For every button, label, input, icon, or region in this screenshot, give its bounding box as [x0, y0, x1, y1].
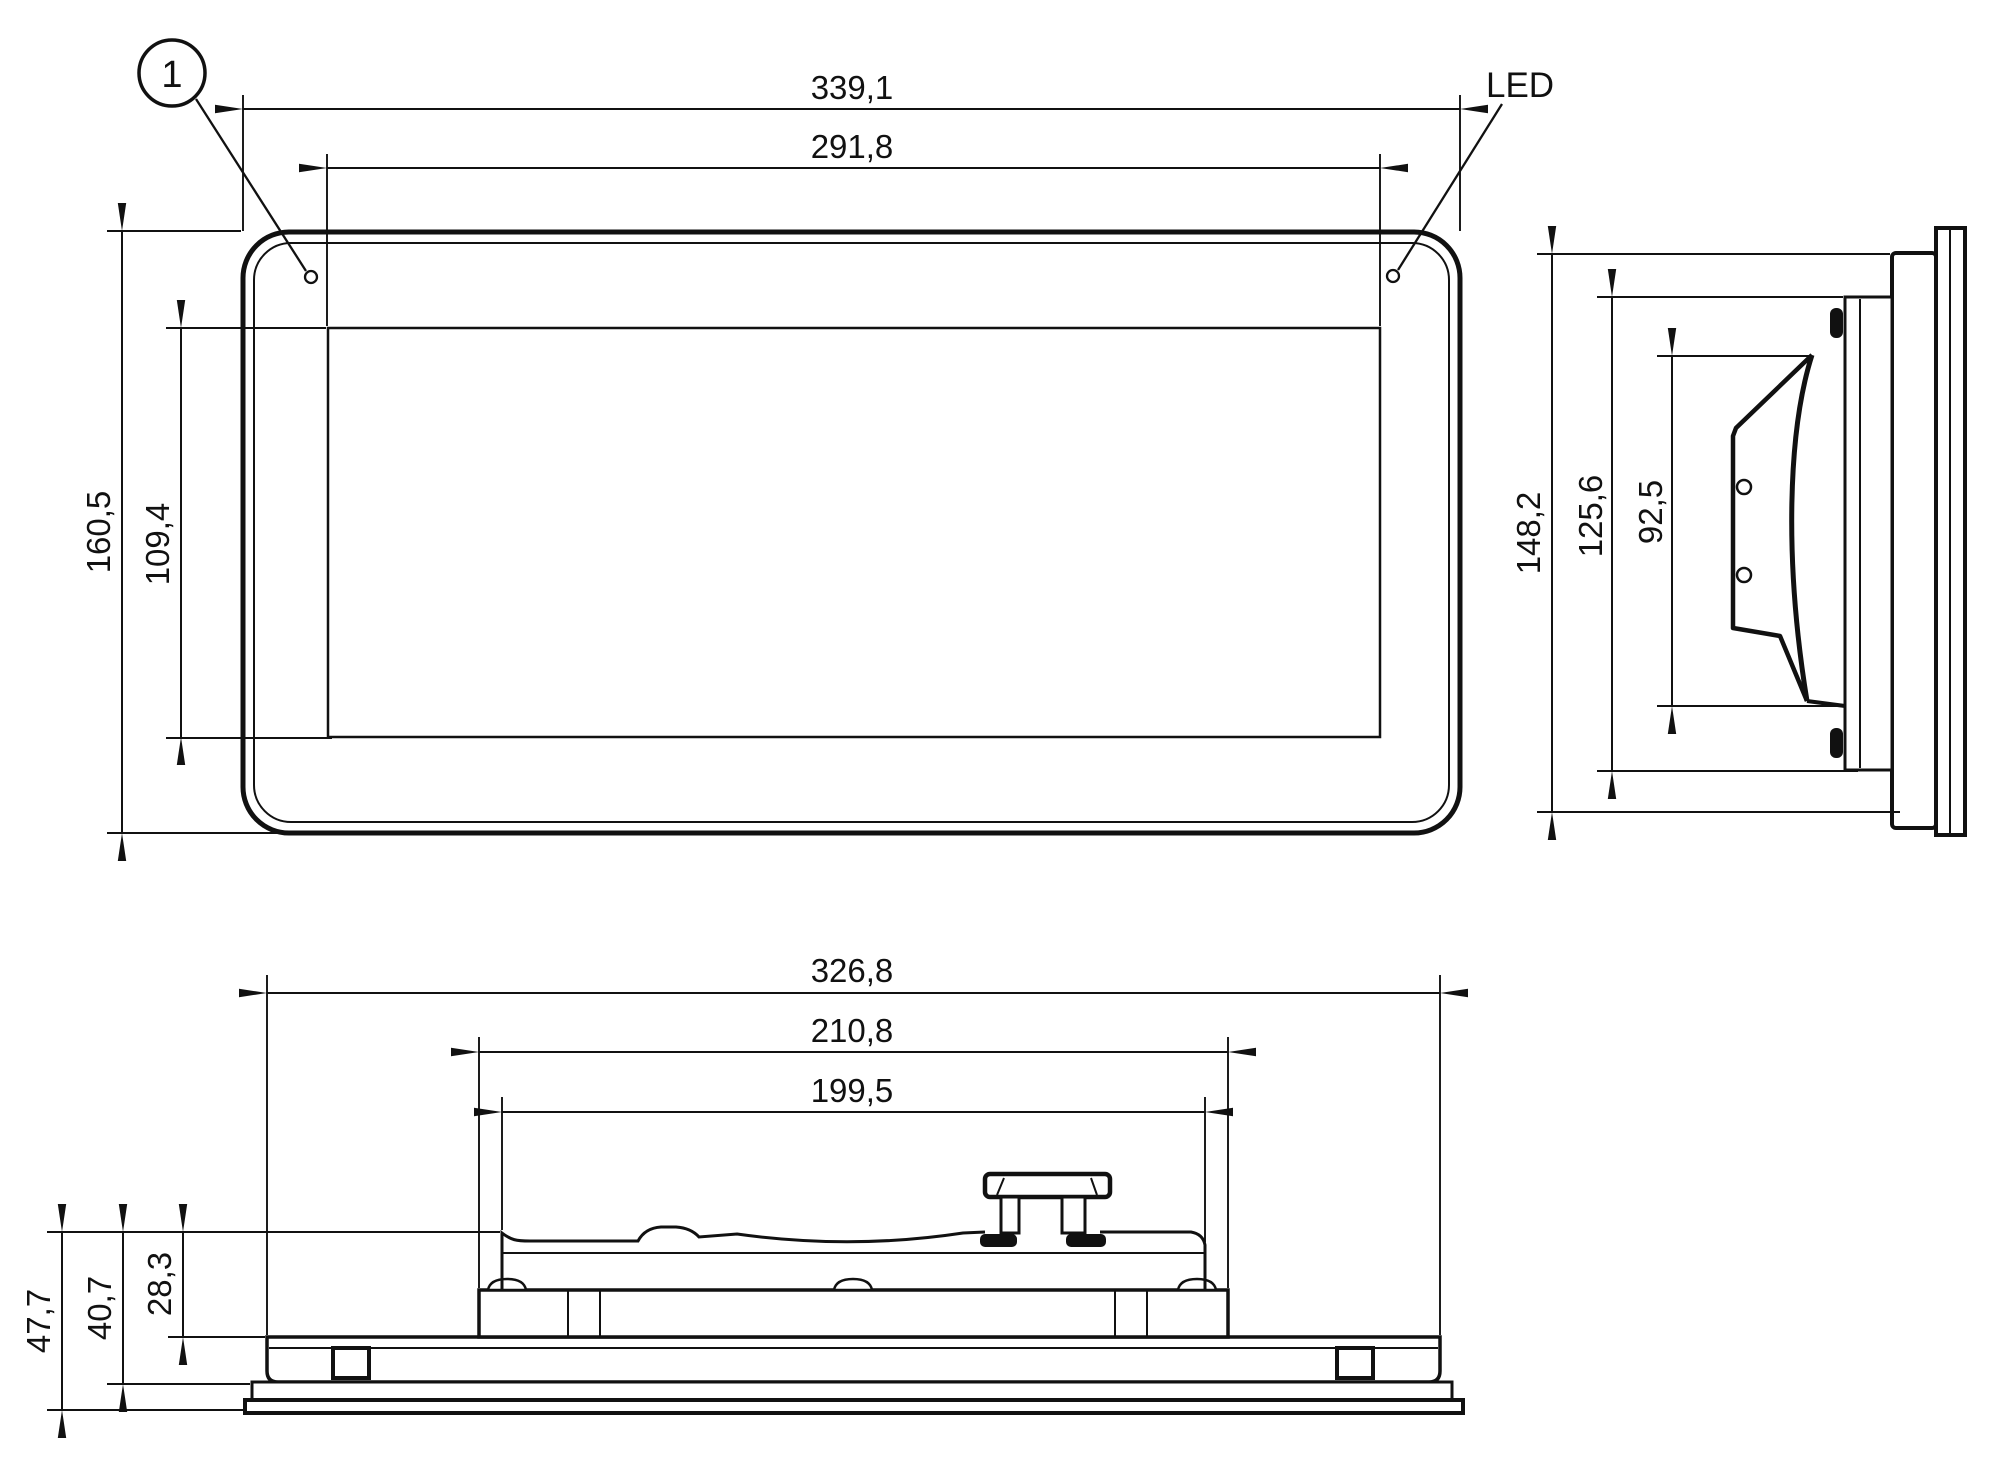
side-clip-tab-bottom [1830, 728, 1843, 758]
dim-side-height-bracket: 92,5 [1632, 356, 1843, 706]
dimension-value: 148,2 [1510, 492, 1547, 575]
dim-bottom-width-flange: 210,8 [479, 1012, 1228, 1288]
led-leader-line [1398, 104, 1502, 270]
connector-foot-left [980, 1234, 1017, 1247]
dimension-value: 109,4 [139, 503, 176, 586]
dimension-value: 199,5 [811, 1072, 894, 1109]
bottom-mount-body-outline [502, 1227, 985, 1290]
connector-post-left [1001, 1197, 1019, 1233]
connector-foot-right [1066, 1234, 1106, 1247]
dim-side-height-housing: 125,6 [1572, 297, 1858, 771]
dimension-value: 40,7 [81, 1276, 118, 1340]
side-chassis [1845, 297, 1892, 770]
side-view [1733, 228, 1965, 835]
bottom-bezel-back [267, 1337, 1440, 1382]
bottom-glass-upper [252, 1382, 1452, 1400]
callout-led: LED [1387, 66, 1554, 282]
dimension-value: 125,6 [1572, 475, 1609, 558]
front-view [243, 232, 1460, 833]
dim-side-height-overall: 148,2 [1510, 254, 1900, 812]
led-target-dot [1387, 270, 1399, 282]
dimension-value: 210,8 [811, 1012, 894, 1049]
connector-cap [985, 1174, 1110, 1197]
led-label: LED [1486, 66, 1554, 105]
dimension-value: 28,3 [141, 1252, 178, 1316]
drawing-canvas: 1 LED 339,1 291,8 160,5 109,4 [0, 0, 2000, 1462]
technical-drawing-svg: 1 LED 339,1 291,8 160,5 109,4 [0, 0, 2000, 1462]
bottom-clip-slot-right [1337, 1348, 1373, 1378]
flange-dome-center [834, 1279, 872, 1290]
side-bracket-hole-bottom [1737, 568, 1751, 582]
dim-bottom-depth-body: 28,3 [141, 1232, 265, 1337]
dimension-value: 339,1 [811, 69, 894, 106]
dim-bottom-width-rear: 326,8 [267, 952, 1440, 1335]
callout-1-number: 1 [161, 54, 182, 96]
dim-bottom-width-body: 199,5 [502, 1072, 1205, 1242]
callout-1-target-dot [305, 271, 317, 283]
side-front-bezel [1892, 253, 1936, 828]
dimension-value: 291,8 [811, 128, 894, 165]
connector-post-right [1062, 1197, 1085, 1233]
dimension-value: 160,5 [80, 491, 117, 574]
display-area [328, 328, 1380, 737]
bottom-clip-slot-left [333, 1348, 369, 1378]
dimension-value: 47,7 [20, 1289, 57, 1353]
side-clip-tab-top [1830, 308, 1843, 338]
dimension-value: 92,5 [1632, 480, 1669, 544]
bottom-view [245, 1174, 1463, 1413]
callout-1-leader-line [196, 99, 306, 271]
flange-dome-right [1178, 1279, 1216, 1290]
side-bracket-hole-top [1737, 480, 1751, 494]
dimension-value: 326,8 [811, 952, 894, 989]
flange-dome-left [488, 1279, 526, 1290]
side-spring-clip-curve [1792, 355, 1812, 701]
callout-position-1: 1 [139, 40, 317, 283]
bottom-glass-lower [245, 1400, 1463, 1413]
